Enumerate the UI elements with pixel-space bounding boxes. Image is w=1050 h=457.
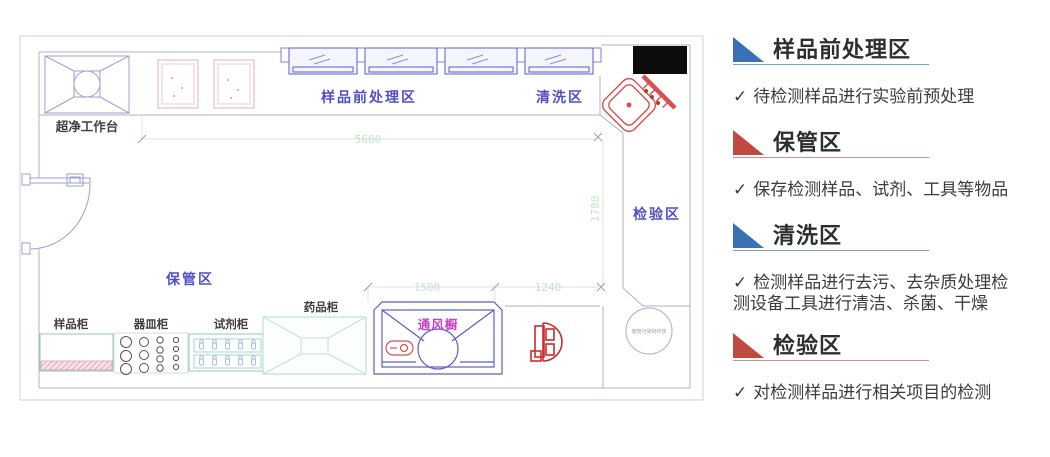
legend-panel: 样品前处理区 ✓待检测样品进行实验前预处理 保管区 ✓保存检测样品、试剂、工具等… xyxy=(715,0,1050,452)
legend-description: ✓对检测样品进行相关项目的检测 xyxy=(733,382,1017,403)
legend-section-storage: 保管区 ✓保存检测样品、试剂、工具等物品 xyxy=(733,126,1043,200)
medicine-cabinet-table xyxy=(263,317,366,374)
legend-header: 保管区 xyxy=(733,126,1043,155)
legend-title: 保管区 xyxy=(773,130,842,155)
legend-header: 检验区 xyxy=(733,329,1043,358)
description-text: 对检测样品进行相关项目的检测 xyxy=(753,383,991,402)
dim-corridor-width: 1240 xyxy=(535,281,562,294)
sample-cabinet xyxy=(40,334,113,371)
legend-title: 样品前处理区 xyxy=(773,37,911,62)
legend-description: ✓待检测样品进行实验前预处理 xyxy=(733,86,1017,107)
floor-plan-drawing: 超净工作台 xyxy=(0,0,712,452)
triangle-icon xyxy=(733,37,764,62)
check-icon: ✓ xyxy=(733,383,747,402)
description-text: 检测样品进行去污、去杂质处理检测设备工具进行清洁、杀菌、干燥 xyxy=(733,273,1008,313)
reagent-cabinet xyxy=(189,334,266,371)
triangle-icon xyxy=(733,333,764,358)
triangle-icon xyxy=(733,130,764,155)
underline xyxy=(733,64,929,65)
triangle-icon xyxy=(733,223,764,248)
label-zone-cleaning: 清洗区 xyxy=(536,89,584,106)
label-fume-hood: 通风橱 xyxy=(418,317,459,332)
check-icon: ✓ xyxy=(733,87,747,106)
legend-section-pretreatment: 样品前处理区 ✓待检测样品进行实验前预处理 xyxy=(733,33,1043,107)
underline xyxy=(733,157,929,158)
underline xyxy=(733,250,929,251)
waste-circle-text: 废物污染物存放 xyxy=(631,328,666,335)
label-reagent-cabinet: 试剂柜 xyxy=(214,317,249,331)
legend-title: 检验区 xyxy=(773,333,842,358)
label-medicine-cabinet: 药品柜 xyxy=(304,300,339,314)
clean-bench xyxy=(45,56,129,113)
label-zone-pretreatment: 样品前处理区 xyxy=(321,89,417,106)
lab-floor-plan: 超净工作台 xyxy=(0,0,712,452)
legend-description: ✓检测样品进行去污、去杂质处理检测设备工具进行清洁、杀菌、干燥 xyxy=(733,272,1017,314)
label-clean-bench: 超净工作台 xyxy=(55,119,119,134)
label-vessel-cabinet: 器皿柜 xyxy=(133,317,169,331)
legend-section-cleaning: 清洗区 ✓检测样品进行去污、去杂质处理检测设备工具进行清洁、杀菌、干燥 xyxy=(733,219,1043,314)
description-text: 保存检测样品、试剂、工具等物品 xyxy=(753,180,1008,199)
check-icon: ✓ xyxy=(733,180,747,199)
check-icon: ✓ xyxy=(733,273,747,292)
waste-circle: 废物污染物存放 xyxy=(626,308,672,354)
label-zone-inspection: 检验区 xyxy=(633,206,681,223)
legend-description: ✓保存检测样品、试剂、工具等物品 xyxy=(733,179,1017,200)
dim-fume-hood-width: 1500 xyxy=(414,281,441,294)
legend-header: 样品前处理区 xyxy=(733,33,1043,62)
legend-section-inspection: 检验区 ✓对检测样品进行相关项目的检测 xyxy=(733,329,1043,403)
underline xyxy=(733,360,929,361)
label-sample-cabinet: 样品柜 xyxy=(54,317,89,331)
legend-header: 清洗区 xyxy=(733,219,1043,248)
black-block xyxy=(633,46,687,74)
label-zone-storage: 保管区 xyxy=(165,271,214,288)
dim-top-width: 5600 xyxy=(355,133,382,146)
description-text: 待检测样品进行实验前预处理 xyxy=(753,87,974,106)
legend-title: 清洗区 xyxy=(773,223,842,248)
dim-right-height: 1780 xyxy=(589,196,602,223)
